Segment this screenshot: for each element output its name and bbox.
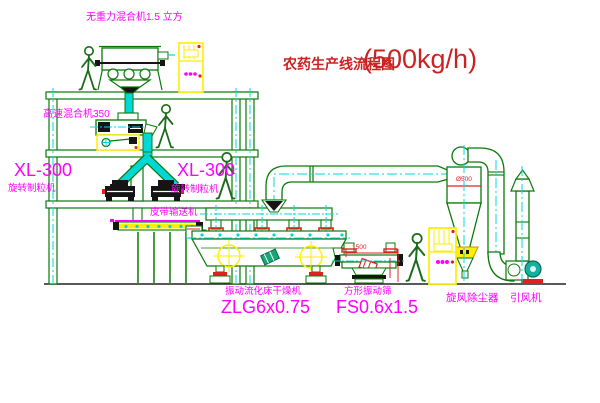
control-cabinet-right: [429, 228, 456, 284]
label-mixer-350: 高速混合机350: [43, 110, 110, 120]
exhaust-pipe: [262, 166, 452, 212]
flow-diagram-canvas: 农药生产线流程图 (500kg/h) 无重力混合机1.5 立方 高速混合机350…: [0, 0, 600, 403]
label-sieve-name: 方形振动筛: [344, 287, 392, 297]
label-gravity-mixer: 无重力混合机1.5 立方: [86, 13, 183, 23]
label-dryer-model: ZLG6x0.75: [221, 298, 310, 316]
diagram-title-capacity: (500kg/h): [363, 46, 477, 73]
person-figure: [157, 105, 174, 148]
label-granulator-right-name: 旋转制粒机: [171, 185, 219, 195]
label-granulator-left-model: XL-300: [14, 161, 72, 179]
discharge-chute: [133, 208, 142, 222]
label-cyclone: 旋风除尘器: [446, 293, 499, 304]
fluid-bed-dryer: [186, 205, 350, 283]
person-figure: [407, 234, 425, 281]
label-granulator-right-model: XL-300: [177, 161, 235, 179]
label-granulator-left-name: 旋转制粒机: [8, 184, 56, 194]
label-induced-fan: 引风机: [510, 293, 542, 304]
person-figure: [80, 47, 97, 90]
control-cabinet-top: [179, 43, 203, 92]
dim-cyclone-diameter: Ø500: [456, 177, 472, 184]
label-dryer-name: 振动流化床干燥机: [225, 287, 301, 297]
granulator-left: [102, 180, 135, 201]
dim-sieve-length: 1500: [352, 245, 366, 252]
label-belt-conveyor: 皮带输送机: [150, 208, 198, 218]
label-sieve-model: FS0.6x1.5: [336, 298, 418, 316]
vibrating-sieve: [332, 243, 404, 283]
